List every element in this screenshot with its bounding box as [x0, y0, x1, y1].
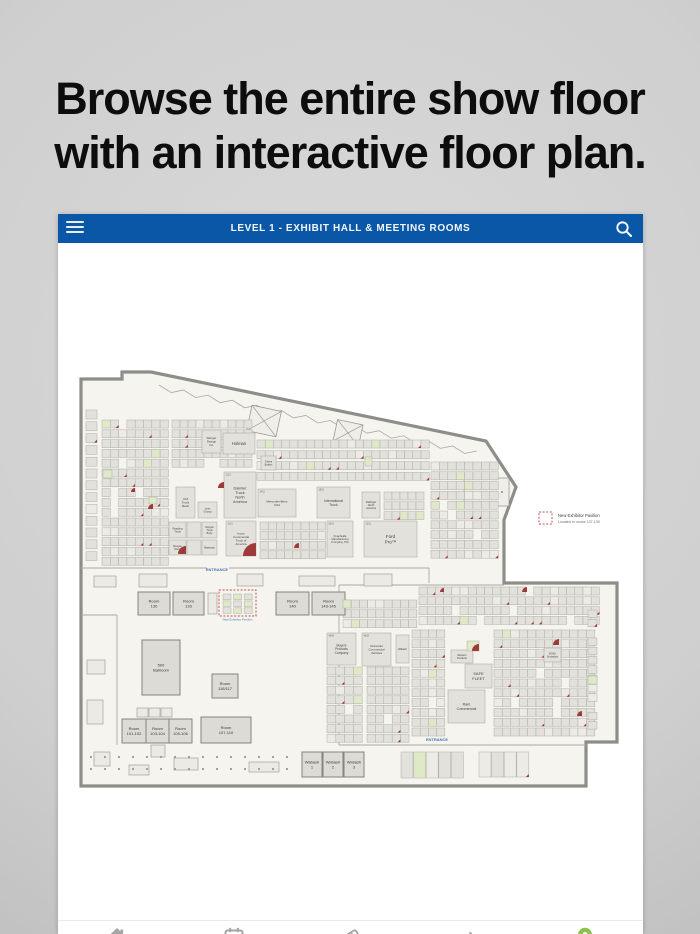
- booth-cell[interactable]: [448, 462, 456, 470]
- booth-cell[interactable]: [427, 616, 435, 624]
- hamburger-menu-button[interactable]: [66, 221, 86, 236]
- booth-cell[interactable]: [384, 610, 392, 618]
- booth-cell[interactable]: [437, 630, 445, 638]
- booth-cell[interactable]: [479, 752, 491, 777]
- booth-cell[interactable]: [435, 597, 443, 605]
- booth-cell[interactable]: [544, 718, 552, 726]
- booth-cell[interactable]: [351, 610, 359, 618]
- booth-cell[interactable]: [420, 699, 428, 707]
- booth-cell[interactable]: [439, 482, 447, 490]
- booth-cell[interactable]: [119, 449, 127, 457]
- booth-cell[interactable]: [260, 541, 268, 549]
- booth-cell[interactable]: [542, 607, 550, 615]
- booth-cell[interactable]: [401, 725, 409, 733]
- booth-cell[interactable]: [517, 752, 529, 777]
- booth-cell[interactable]: [502, 669, 510, 677]
- booth-cell[interactable]: [306, 451, 314, 459]
- booth-cell[interactable]: [476, 597, 484, 605]
- booth-cell[interactable]: [494, 679, 502, 687]
- booth-cell[interactable]: [160, 489, 168, 497]
- booth-cell[interactable]: [285, 522, 293, 530]
- booth-cell[interactable]: [473, 550, 481, 558]
- booth-cell[interactable]: [448, 482, 456, 490]
- booth-cell[interactable]: [401, 667, 409, 675]
- booth-cell[interactable]: [490, 521, 498, 529]
- booth-cell[interactable]: [384, 725, 392, 733]
- booth-cell[interactable]: [392, 610, 400, 618]
- booth-cell[interactable]: [306, 472, 314, 480]
- booth-cell[interactable]: [553, 728, 561, 736]
- booth-cell[interactable]: [412, 630, 420, 638]
- booth-cell[interactable]: [364, 472, 372, 480]
- booth-cell[interactable]: [439, 462, 447, 470]
- booth-cell[interactable]: [172, 430, 180, 438]
- booth-cell[interactable]: [293, 532, 301, 540]
- booth-cell[interactable]: [536, 699, 544, 707]
- booth-cell[interactable]: [160, 538, 168, 546]
- new-exhibitor-pavilion[interactable]: New Exhibitor Pavilion: [219, 590, 256, 622]
- booth-cell[interactable]: [268, 541, 276, 549]
- booth-cell[interactable]: [152, 420, 160, 428]
- booth-cell[interactable]: [460, 597, 468, 605]
- booth-cell[interactable]: [301, 522, 309, 530]
- booth-cell[interactable]: [428, 630, 436, 638]
- booth-cell[interactable]: [570, 679, 578, 687]
- booth-cell[interactable]: [502, 650, 510, 658]
- booth-cell[interactable]: [473, 491, 481, 499]
- booth-cell[interactable]: [519, 728, 527, 736]
- booth-cell[interactable]: [196, 420, 204, 428]
- booth-cell[interactable]: [419, 616, 427, 624]
- booth-cell[interactable]: [384, 512, 392, 520]
- booth-cell[interactable]: [519, 718, 527, 726]
- booth-cell[interactable]: [110, 430, 118, 438]
- booth-cell[interactable]: [435, 607, 443, 615]
- booth-cell[interactable]: [519, 630, 527, 638]
- booth-cell[interactable]: [384, 667, 392, 675]
- booth-cell[interactable]: [102, 479, 110, 487]
- nav-map-button[interactable]: [573, 925, 597, 934]
- booth-cell[interactable]: [465, 491, 473, 499]
- booth-cell[interactable]: [444, 597, 452, 605]
- booth-cell[interactable]: [196, 459, 204, 467]
- booth-cell[interactable]: [367, 686, 375, 694]
- booth-cell[interactable]: [591, 597, 599, 605]
- booth-cell[interactable]: [347, 472, 355, 480]
- booth-cell[interactable]: [448, 540, 456, 548]
- booth-cell[interactable]: [268, 532, 276, 540]
- booth-cell[interactable]: [448, 531, 456, 539]
- booth-cell[interactable]: [276, 541, 284, 549]
- booth-cell[interactable]: [456, 521, 464, 529]
- booth-cell[interactable]: [494, 630, 502, 638]
- highlighted-booth[interactable]: [103, 470, 112, 478]
- booth-cell[interactable]: [511, 650, 519, 658]
- booth-cell[interactable]: [412, 718, 420, 726]
- booth-cell[interactable]: [536, 659, 544, 667]
- booth-cell[interactable]: [331, 451, 339, 459]
- booth-cell[interactable]: [494, 718, 502, 726]
- booth-cell[interactable]: [460, 587, 468, 595]
- booth-cell[interactable]: [481, 550, 489, 558]
- booth-cell[interactable]: [550, 587, 558, 595]
- booth-cell[interactable]: [276, 532, 284, 540]
- booth-cell[interactable]: [293, 551, 301, 559]
- booth-cell[interactable]: [570, 699, 578, 707]
- booth-cell[interactable]: [494, 708, 502, 716]
- booth-cell[interactable]: [416, 492, 424, 500]
- booth-cell[interactable]: [435, 616, 443, 624]
- booth-cell[interactable]: [420, 708, 428, 716]
- booth-cell[interactable]: [339, 462, 347, 470]
- booth-cell[interactable]: [588, 684, 597, 692]
- booth-cell[interactable]: [268, 551, 276, 559]
- booth-cell[interactable]: [511, 640, 519, 648]
- booth-cell[interactable]: [578, 659, 586, 667]
- booth-cell[interactable]: [485, 607, 493, 615]
- booth-cell[interactable]: [511, 708, 519, 716]
- booth-cell[interactable]: [428, 640, 436, 648]
- booth-cell[interactable]: [519, 650, 527, 658]
- booth-cell[interactable]: [135, 430, 143, 438]
- booth-cell[interactable]: [561, 669, 569, 677]
- booth-cell[interactable]: [465, 521, 473, 529]
- booth-cell[interactable]: [481, 462, 489, 470]
- booth-cell[interactable]: [127, 528, 135, 536]
- booth-cell[interactable]: [490, 540, 498, 548]
- booth-cell[interactable]: [127, 538, 135, 546]
- booth-cell[interactable]: [375, 686, 383, 694]
- booth-cell[interactable]: [401, 686, 409, 694]
- booth-cell[interactable]: [528, 659, 536, 667]
- booth-cell[interactable]: [428, 728, 436, 736]
- booth-cell[interactable]: [127, 557, 135, 565]
- booth-cell[interactable]: [144, 547, 152, 555]
- booth-cell[interactable]: [400, 610, 408, 618]
- booth-cell[interactable]: [528, 718, 536, 726]
- booth-cell[interactable]: [494, 728, 502, 736]
- booth-cell[interactable]: [119, 498, 127, 506]
- booth-cell[interactable]: [127, 498, 135, 506]
- booth-cell[interactable]: [188, 449, 196, 457]
- booth-cell[interactable]: [160, 459, 168, 467]
- booth-cell[interactable]: [456, 501, 464, 509]
- booth-cell[interactable]: [456, 491, 464, 499]
- booth-cell[interactable]: [558, 597, 566, 605]
- booth-cell[interactable]: [570, 728, 578, 736]
- booth-cell[interactable]: [392, 492, 400, 500]
- booth-cell[interactable]: [528, 699, 536, 707]
- booth-cell[interactable]: [519, 689, 527, 697]
- booth-cell[interactable]: [336, 725, 345, 733]
- booth-cell[interactable]: [494, 669, 502, 677]
- booth-cell[interactable]: [405, 451, 413, 459]
- booth-cell[interactable]: [282, 451, 290, 459]
- booth-cell[interactable]: [401, 715, 409, 723]
- booth-cell[interactable]: [353, 696, 362, 704]
- booth-cell[interactable]: [119, 547, 127, 555]
- booth-cell[interactable]: [456, 550, 464, 558]
- booth-cell[interactable]: [428, 669, 436, 677]
- booth-cell[interactable]: [396, 440, 404, 448]
- booth-cell[interactable]: [401, 734, 409, 742]
- booth-cell[interactable]: [544, 708, 552, 716]
- booth-cell[interactable]: [536, 630, 544, 638]
- booth-cell[interactable]: [367, 715, 375, 723]
- booth-cell[interactable]: [102, 557, 110, 565]
- booth-cell[interactable]: [384, 620, 392, 628]
- booth-cell[interactable]: [542, 616, 550, 624]
- booth-cell[interactable]: [536, 640, 544, 648]
- booth-cell[interactable]: [412, 708, 420, 716]
- booth-cell[interactable]: [364, 440, 372, 448]
- booth-cell[interactable]: [119, 508, 127, 516]
- booth-cell[interactable]: [578, 728, 586, 736]
- booth-cell[interactable]: [476, 587, 484, 595]
- booth-cell[interactable]: [86, 516, 97, 525]
- booth-cell[interactable]: [468, 587, 476, 595]
- booth-cell[interactable]: [439, 472, 447, 480]
- nav-exhibitors-button[interactable]: [339, 925, 363, 934]
- booth-cell[interactable]: [323, 472, 331, 480]
- booth-cell[interactable]: [265, 440, 273, 448]
- booth-cell[interactable]: [431, 472, 439, 480]
- booth-cell[interactable]: [375, 734, 383, 742]
- booth-cell[interactable]: [298, 451, 306, 459]
- booth-cell[interactable]: [536, 679, 544, 687]
- search-button[interactable]: [613, 218, 635, 240]
- booth-cell[interactable]: [588, 647, 597, 655]
- booth-cell[interactable]: [290, 462, 298, 470]
- booth-cell[interactable]: [456, 472, 464, 480]
- booth-cell[interactable]: [490, 501, 498, 509]
- booth-cell[interactable]: [588, 610, 597, 618]
- booth-cell[interactable]: [420, 728, 428, 736]
- booth-cell[interactable]: [102, 449, 110, 457]
- booth-cell[interactable]: [517, 616, 525, 624]
- booth-cell[interactable]: [437, 640, 445, 648]
- booth-cell[interactable]: [485, 597, 493, 605]
- booth-cell[interactable]: [367, 725, 375, 733]
- booth-cell[interactable]: [561, 699, 569, 707]
- booth-cell[interactable]: [481, 482, 489, 490]
- booth-cell[interactable]: [456, 531, 464, 539]
- booth-cell[interactable]: [437, 718, 445, 726]
- booth-cell[interactable]: [144, 449, 152, 457]
- booth-cell[interactable]: [588, 638, 597, 646]
- booth-cell[interactable]: [570, 689, 578, 697]
- booth-cell[interactable]: [519, 659, 527, 667]
- booth-cell[interactable]: [160, 430, 168, 438]
- booth-cell[interactable]: [405, 440, 413, 448]
- booth-cell[interactable]: [384, 677, 392, 685]
- booth-cell[interactable]: [536, 728, 544, 736]
- booth-cell[interactable]: [86, 552, 97, 561]
- booth-cell[interactable]: [400, 620, 408, 628]
- booth-cell[interactable]: [468, 607, 476, 615]
- booth-cell[interactable]: [384, 502, 392, 510]
- booth-cell[interactable]: [160, 440, 168, 448]
- booth-cell[interactable]: [465, 501, 473, 509]
- booth-cell[interactable]: [421, 440, 429, 448]
- booth-cell[interactable]: [412, 640, 420, 648]
- booth-cell[interactable]: [412, 669, 420, 677]
- booth-cell[interactable]: [152, 479, 160, 487]
- booth-cell[interactable]: [465, 540, 473, 548]
- booth-cell[interactable]: [578, 699, 586, 707]
- booth-cell[interactable]: [260, 532, 268, 540]
- booth-cell[interactable]: [317, 541, 325, 549]
- booth-cell[interactable]: [570, 659, 578, 667]
- booth-cell[interactable]: [511, 659, 519, 667]
- booth-cell[interactable]: [172, 459, 180, 467]
- booth-cell[interactable]: [490, 531, 498, 539]
- booth-cell[interactable]: [468, 616, 476, 624]
- booth-cell[interactable]: [465, 531, 473, 539]
- booth-cell[interactable]: [409, 600, 417, 608]
- booth-cell[interactable]: [428, 708, 436, 716]
- booth-cell[interactable]: [127, 518, 135, 526]
- booth-cell[interactable]: [421, 462, 429, 470]
- booth-cell[interactable]: [400, 492, 408, 500]
- booth-cell[interactable]: [420, 669, 428, 677]
- booth-cell[interactable]: [152, 538, 160, 546]
- booth-cell[interactable]: [544, 689, 552, 697]
- booth-cell[interactable]: [544, 699, 552, 707]
- booth-cell[interactable]: [119, 440, 127, 448]
- booth-cell[interactable]: [355, 440, 363, 448]
- booth-cell[interactable]: [336, 667, 345, 675]
- booth-cell[interactable]: [431, 521, 439, 529]
- booth-cell[interactable]: [102, 440, 110, 448]
- booth-cell[interactable]: [392, 677, 400, 685]
- floor-plan[interactable]: RangerDesignInc.HolmanTotevaBodies1121Da…: [58, 243, 643, 934]
- booth-cell[interactable]: [135, 518, 143, 526]
- booth-cell[interactable]: [86, 410, 97, 419]
- booth-cell[interactable]: [314, 472, 322, 480]
- booth-cell[interactable]: [558, 607, 566, 615]
- booth-cell[interactable]: [437, 669, 445, 677]
- booth-cell[interactable]: [536, 689, 544, 697]
- booth-cell[interactable]: [511, 679, 519, 687]
- booth-cell[interactable]: [409, 610, 417, 618]
- booth-cell[interactable]: [188, 420, 196, 428]
- booth-cell[interactable]: [591, 587, 599, 595]
- booth-cell[interactable]: [86, 493, 97, 502]
- booth-cell[interactable]: [314, 440, 322, 448]
- booth-cell[interactable]: [570, 718, 578, 726]
- booth-cell[interactable]: [260, 522, 268, 530]
- booth-cell[interactable]: [102, 508, 110, 516]
- booth-cell[interactable]: [456, 540, 464, 548]
- booth-cell[interactable]: [426, 752, 438, 778]
- floor-plan-svg[interactable]: RangerDesignInc.HolmanTotevaBodies1121Da…: [58, 243, 643, 934]
- booth-cell[interactable]: [575, 607, 583, 615]
- booth-cell[interactable]: [396, 472, 404, 480]
- booth-cell[interactable]: [490, 482, 498, 490]
- booth-cell[interactable]: [511, 728, 519, 736]
- booth-cell[interactable]: [144, 459, 152, 467]
- booth-cell[interactable]: [481, 472, 489, 480]
- booth-cell[interactable]: [420, 718, 428, 726]
- booth-cell[interactable]: [570, 650, 578, 658]
- booth-cell[interactable]: [180, 449, 188, 457]
- booth-cell[interactable]: [526, 607, 534, 615]
- booth-cell[interactable]: [427, 607, 435, 615]
- booth-cell[interactable]: [420, 650, 428, 658]
- booth-cell[interactable]: [327, 725, 336, 733]
- booth-cell[interactable]: [309, 532, 317, 540]
- booth-grid[interactable]: [384, 492, 424, 520]
- booth-cell[interactable]: [519, 669, 527, 677]
- booth-cell[interactable]: [298, 472, 306, 480]
- booth-cell[interactable]: [144, 420, 152, 428]
- booth-cell[interactable]: [265, 472, 273, 480]
- booth-cell[interactable]: [236, 420, 244, 428]
- booth-cell[interactable]: [408, 502, 416, 510]
- booth-cell[interactable]: [439, 531, 447, 539]
- booth-cell[interactable]: [473, 540, 481, 548]
- booth-cell[interactable]: [416, 502, 424, 510]
- booth-cell[interactable]: [578, 689, 586, 697]
- booth-cell[interactable]: [368, 610, 376, 618]
- booth-cell[interactable]: [392, 686, 400, 694]
- booth-cell[interactable]: [437, 679, 445, 687]
- booth-cell[interactable]: [490, 472, 498, 480]
- booth-cell[interactable]: [561, 659, 569, 667]
- booth-cell[interactable]: [375, 715, 383, 723]
- booth-cell[interactable]: [119, 430, 127, 438]
- booth-cell[interactable]: [460, 616, 468, 624]
- booth-cell[interactable]: [401, 752, 413, 778]
- booth-cell[interactable]: [405, 472, 413, 480]
- booth-cell[interactable]: [317, 522, 325, 530]
- booth-cell[interactable]: [380, 451, 388, 459]
- booth-cell[interactable]: [509, 587, 517, 595]
- booth-cell[interactable]: [502, 689, 510, 697]
- booth-cell[interactable]: [160, 469, 168, 477]
- nav-updates-button[interactable]: [456, 925, 480, 934]
- booth-cell[interactable]: [534, 587, 542, 595]
- booth-cell[interactable]: [452, 597, 460, 605]
- booth-cell[interactable]: [412, 728, 420, 736]
- booth-cell[interactable]: [473, 482, 481, 490]
- booth-cell[interactable]: [528, 669, 536, 677]
- booth-cell[interactable]: [493, 597, 501, 605]
- booth-cell[interactable]: [327, 734, 336, 742]
- booth-cell[interactable]: [392, 667, 400, 675]
- nav-home-button[interactable]: [105, 925, 129, 934]
- booth-cell[interactable]: [367, 705, 375, 713]
- booth-cell[interactable]: [561, 708, 569, 716]
- booth-cell[interactable]: [290, 451, 298, 459]
- booth-cell[interactable]: [257, 472, 265, 480]
- booth-cell[interactable]: [536, 708, 544, 716]
- booth-cell[interactable]: [485, 587, 493, 595]
- booth-cell[interactable]: [437, 659, 445, 667]
- booth-cell[interactable]: [172, 440, 180, 448]
- booth-cell[interactable]: [481, 491, 489, 499]
- booth-cell[interactable]: [127, 440, 135, 448]
- booth-cell[interactable]: [376, 600, 384, 608]
- booth-cell[interactable]: [528, 650, 536, 658]
- booth-cell[interactable]: [401, 696, 409, 704]
- booth-cell[interactable]: [553, 669, 561, 677]
- booth-cell[interactable]: [359, 600, 367, 608]
- booth-cell[interactable]: [298, 462, 306, 470]
- booth-cell[interactable]: [534, 597, 542, 605]
- booth-cell[interactable]: [465, 472, 473, 480]
